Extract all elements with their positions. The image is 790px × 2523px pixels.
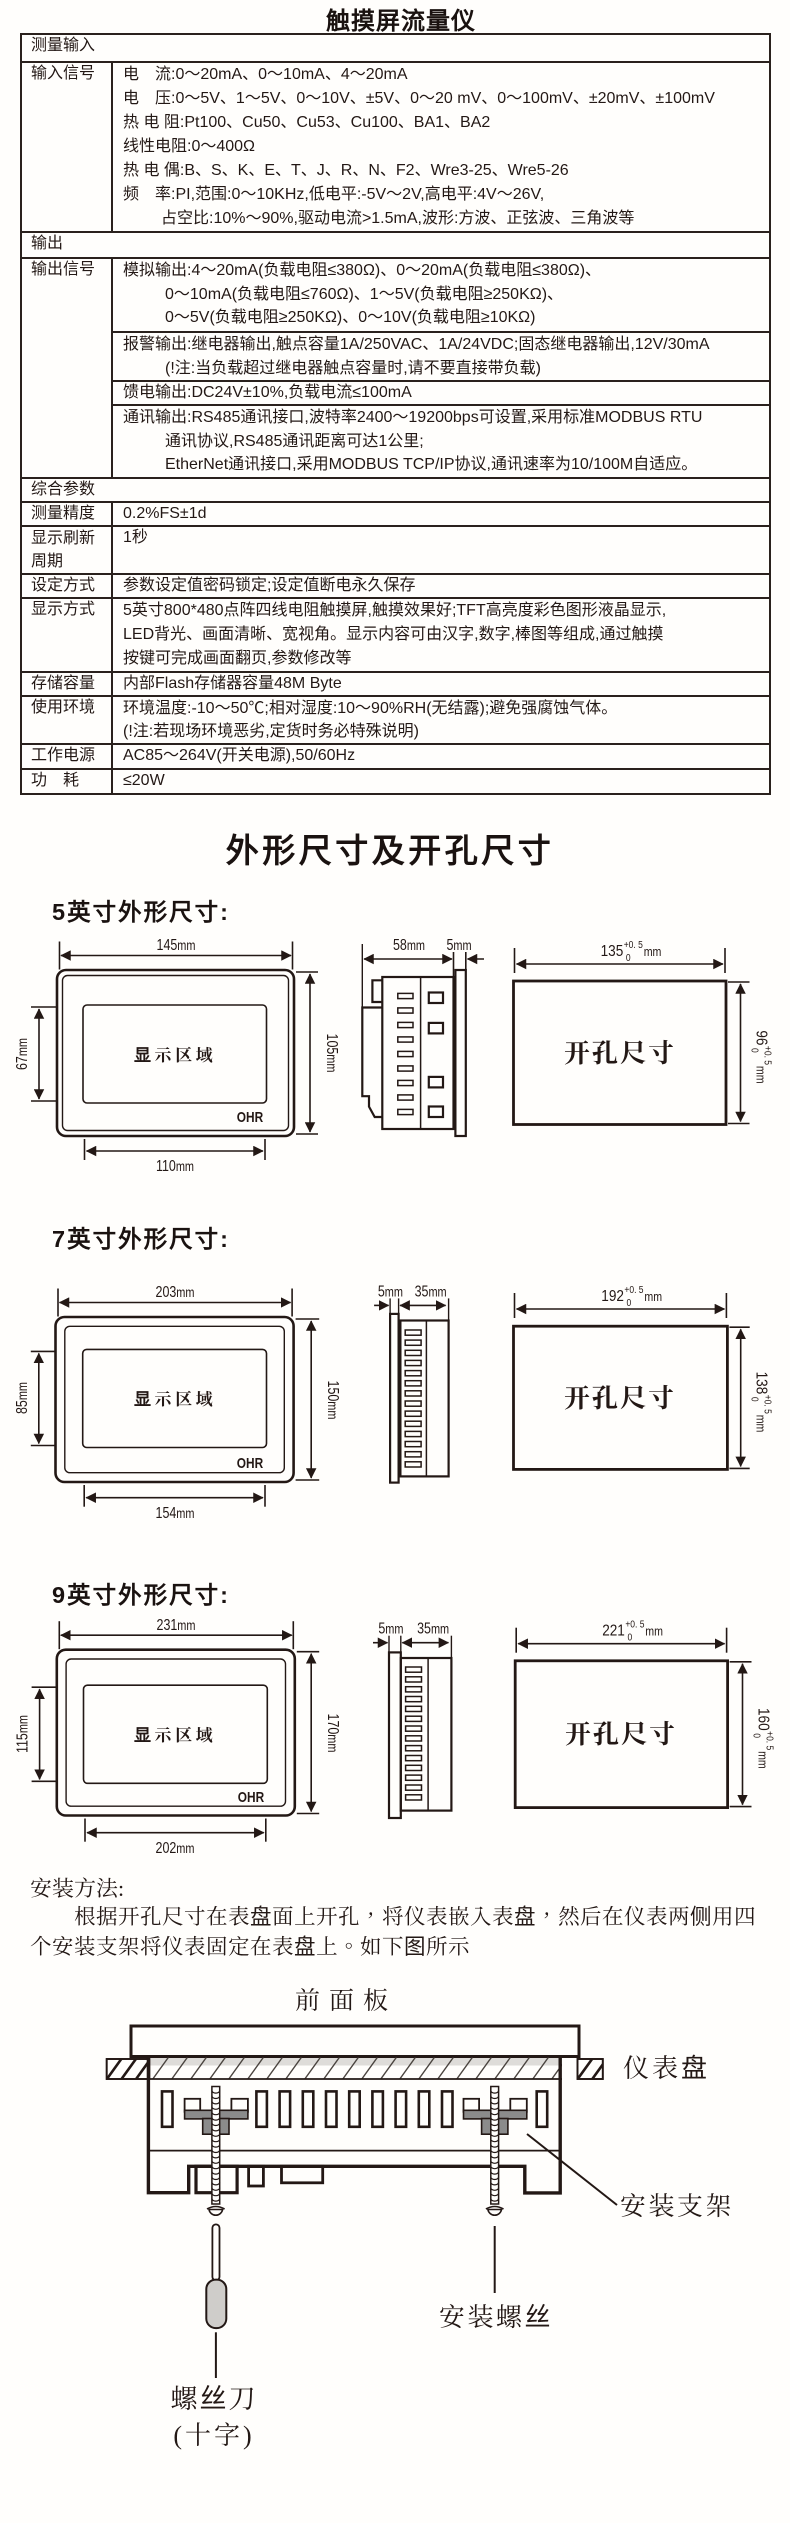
svg-text:105mm: 105mm (323, 1034, 341, 1073)
svg-text:5mm: 5mm (378, 1283, 403, 1301)
svg-text:显示区域: 显示区域 (134, 1046, 216, 1065)
svg-text:mm: mm (753, 1415, 767, 1433)
svg-text:231mm: 231mm (157, 1617, 196, 1635)
svg-text:170mm: 170mm (324, 1714, 342, 1753)
svg-text:192: 192 (601, 1288, 624, 1305)
svg-text:35mm: 35mm (417, 1620, 449, 1638)
svg-text:0: 0 (627, 1297, 632, 1308)
svg-text:0: 0 (627, 1632, 632, 1643)
svg-text:安装支架: 安装支架 (620, 2192, 734, 2221)
svg-text:+0. 5: +0. 5 (763, 1395, 774, 1414)
svg-text:115mm: 115mm (14, 1715, 32, 1753)
svg-text:135: 135 (601, 943, 624, 960)
svg-text:+0. 5: +0. 5 (764, 1731, 775, 1750)
svg-text:+0. 5: +0. 5 (624, 939, 643, 950)
svg-text:mm: mm (755, 1751, 769, 1769)
svg-text:0: 0 (750, 1397, 761, 1402)
svg-text:35mm: 35mm (415, 1283, 447, 1301)
svg-text:mm: mm (753, 1066, 767, 1084)
svg-text:OHR: OHR (237, 1455, 264, 1471)
svg-text:110mm: 110mm (156, 1158, 194, 1176)
svg-text:安装螺丝: 安装螺丝 (439, 2303, 553, 2332)
svg-text:螺丝刀: 螺丝刀 (171, 2384, 258, 2414)
svg-text:5mm: 5mm (378, 1620, 403, 1638)
svg-text:开孔尺寸: 开孔尺寸 (565, 1720, 677, 1749)
svg-text:前面板: 前面板 (295, 1987, 397, 2015)
svg-text:mm: mm (644, 945, 662, 959)
svg-text:0: 0 (626, 952, 631, 963)
svg-text:开孔尺寸: 开孔尺寸 (564, 1039, 676, 1068)
svg-text:+0. 5: +0. 5 (762, 1046, 773, 1065)
svg-text:显示区域: 显示区域 (134, 1726, 216, 1745)
svg-text:5mm: 5mm (446, 937, 471, 955)
svg-text:mm: mm (645, 1625, 663, 1639)
svg-text:58mm: 58mm (393, 937, 425, 955)
svg-text:显示区域: 显示区域 (134, 1390, 216, 1409)
svg-text:OHR: OHR (238, 1789, 265, 1805)
svg-text:203mm: 203mm (156, 1284, 195, 1302)
svg-text:85mm: 85mm (13, 1382, 31, 1414)
svg-text:67mm: 67mm (14, 1038, 32, 1070)
svg-text:mm: mm (644, 1290, 662, 1304)
svg-text:开孔尺寸: 开孔尺寸 (564, 1384, 676, 1413)
svg-text:202mm: 202mm (156, 1840, 195, 1858)
svg-text:160: 160 (754, 1708, 771, 1731)
svg-text:+0. 5: +0. 5 (624, 1284, 643, 1295)
svg-text:138: 138 (752, 1372, 769, 1395)
svg-text:145mm: 145mm (157, 937, 196, 955)
svg-text:221: 221 (602, 1623, 625, 1640)
svg-text:154mm: 154mm (156, 1505, 195, 1523)
svg-text:仪表盘: 仪表盘 (623, 2054, 710, 2083)
svg-text:0: 0 (751, 1733, 762, 1738)
svg-text:OHR: OHR (237, 1109, 264, 1125)
svg-text:96: 96 (752, 1030, 769, 1045)
svg-text:+0. 5: +0. 5 (625, 1619, 644, 1630)
svg-text:(十字): (十字) (173, 2421, 254, 2450)
svg-text:150mm: 150mm (324, 1381, 342, 1420)
svg-text:0: 0 (749, 1048, 760, 1053)
